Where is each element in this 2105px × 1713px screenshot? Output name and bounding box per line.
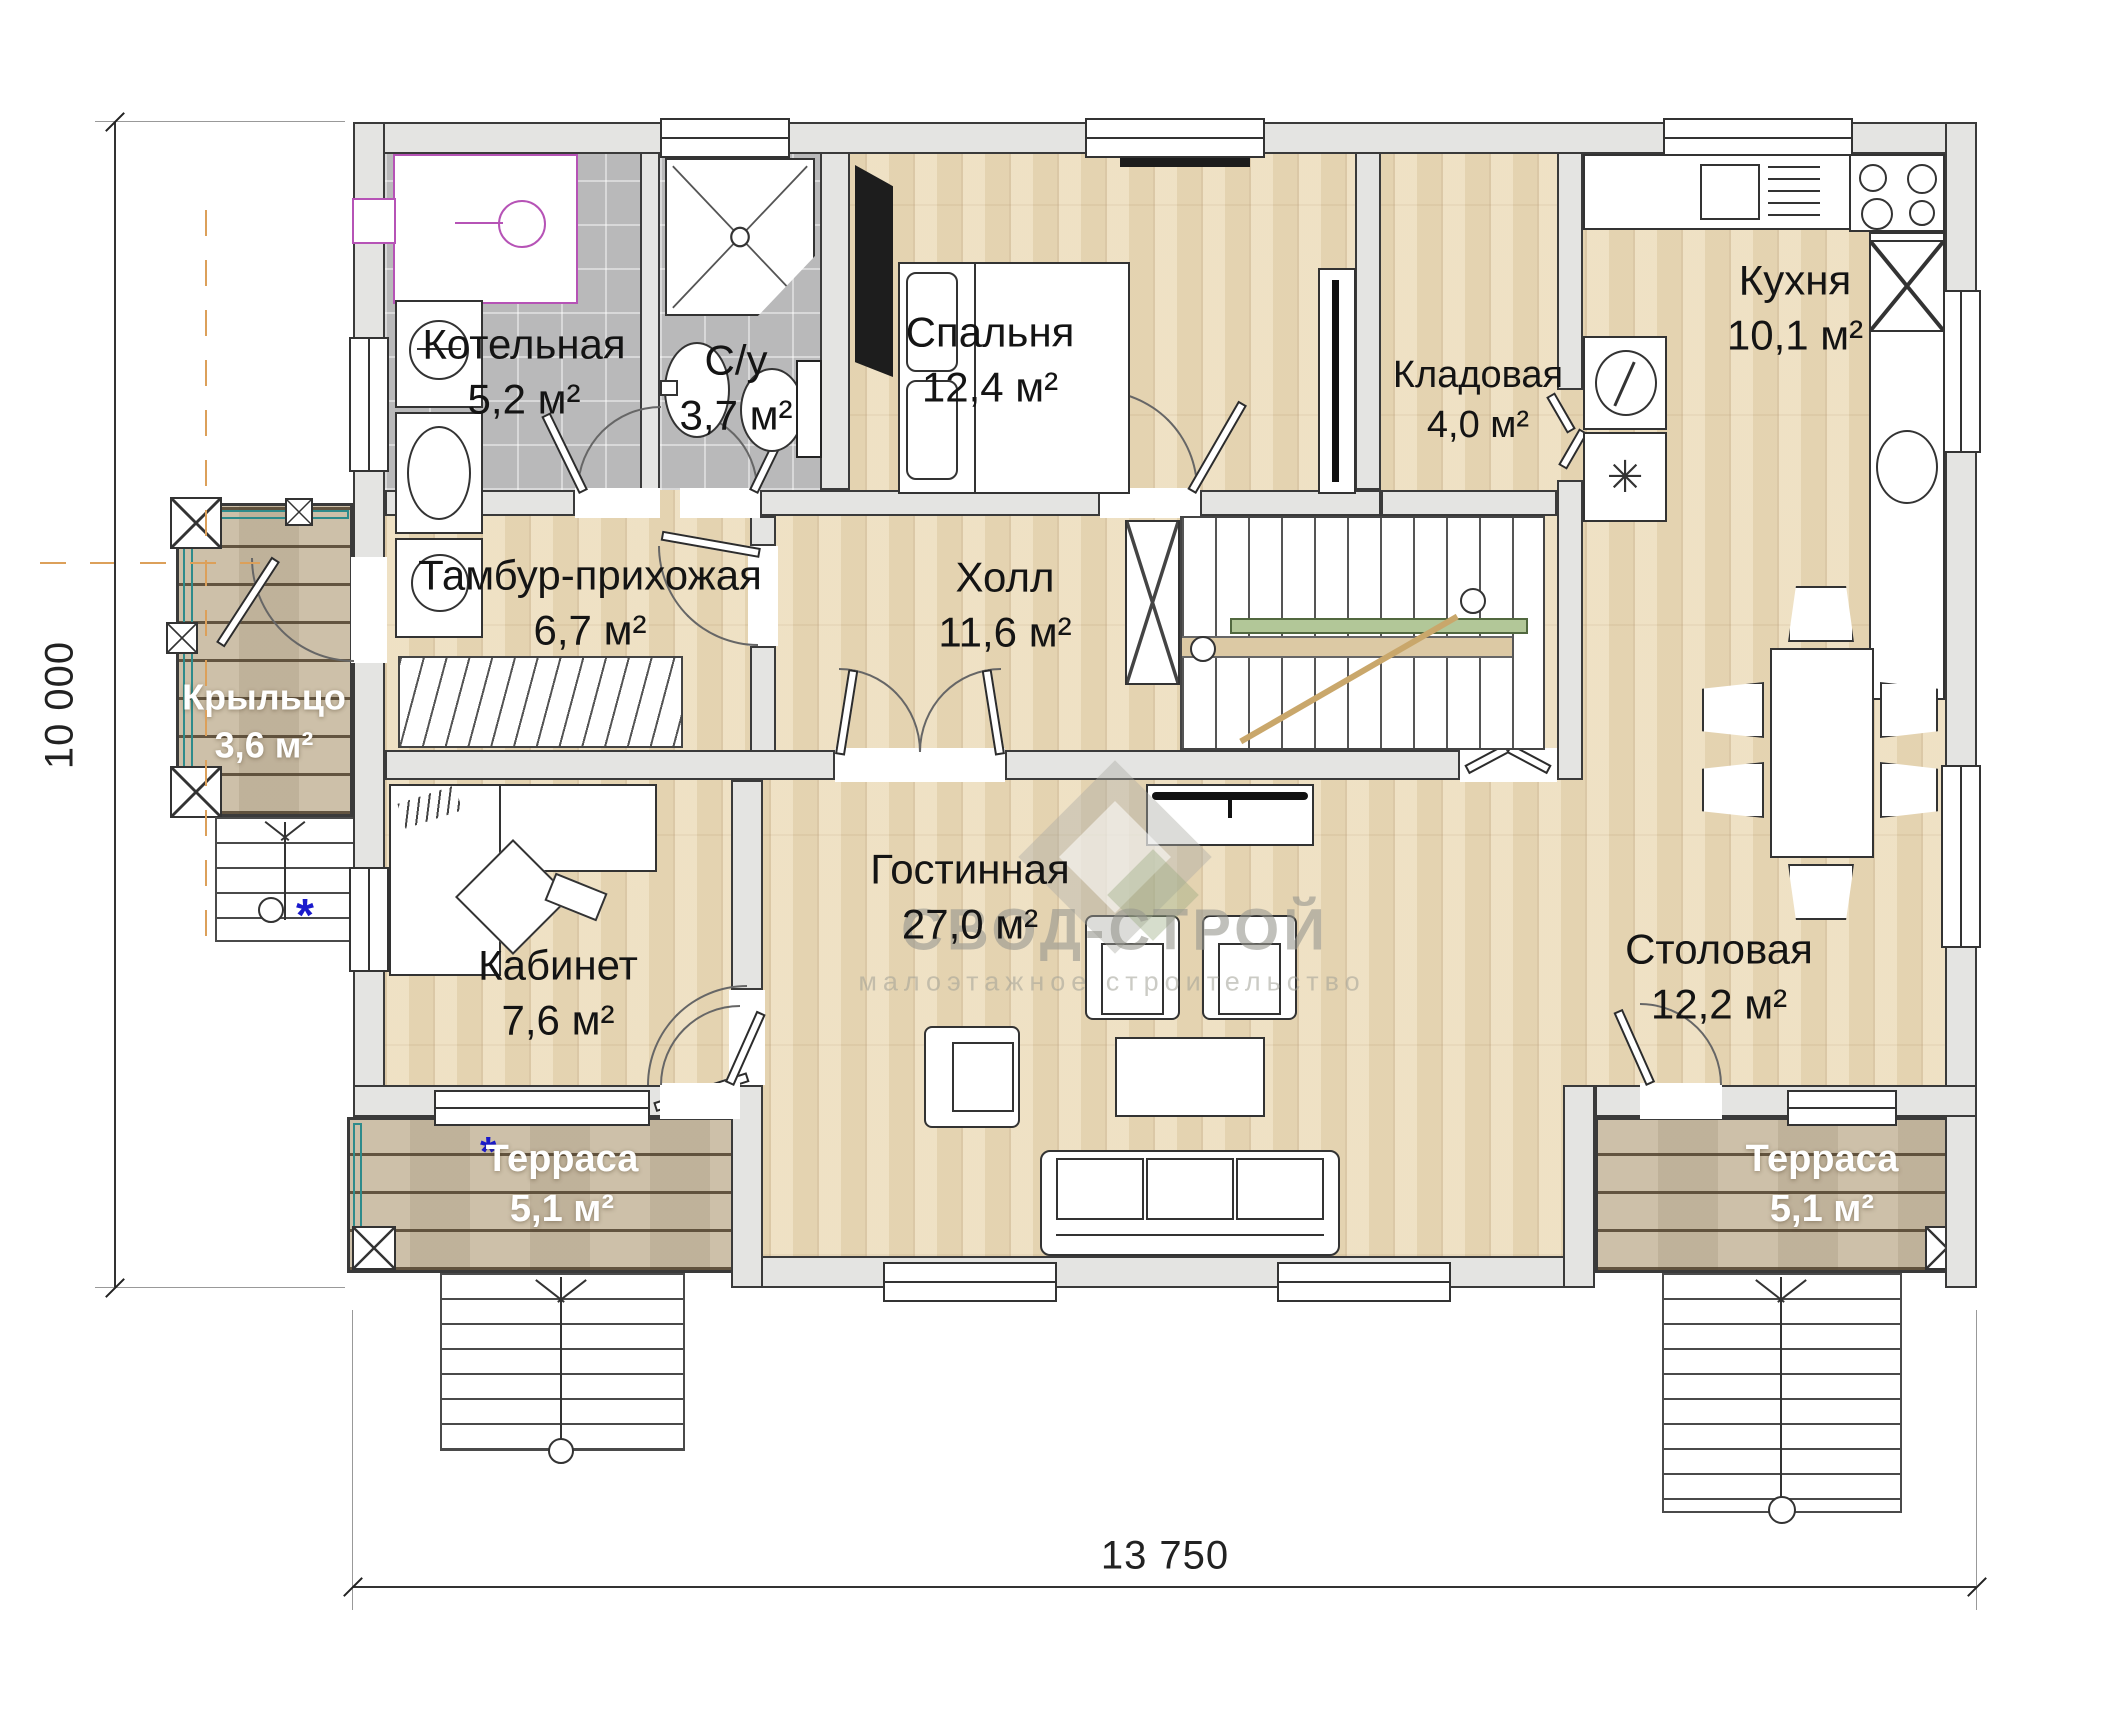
- wall-stairs-living: [1005, 750, 1460, 780]
- door-opening-entrance: [351, 557, 387, 663]
- porch-post-small: [166, 622, 198, 654]
- room-area: 7,6 м²: [478, 993, 638, 1048]
- room-name: Кухня: [1727, 253, 1863, 308]
- room-label-vestibule: Тамбур-прихожая 6,7 м²: [418, 548, 762, 659]
- dining-chair-icon: [1788, 864, 1854, 920]
- terrace-left-steps-arrow-stem: [560, 1277, 562, 1447]
- wall-bedroom-pantry: [1355, 152, 1381, 490]
- sofa-icon: [1040, 1150, 1340, 1256]
- room-label-hall: Холл 11,6 м²: [938, 550, 1071, 661]
- armchair-icon: [924, 1026, 1020, 1128]
- dining-chair-icon: [1880, 682, 1938, 738]
- window-bathroom: [660, 118, 790, 158]
- wall-hall-dining: [1557, 480, 1583, 780]
- axis-line-horizontal: [40, 562, 260, 564]
- porch-post: [170, 497, 222, 549]
- door-opening-dining-terrace: [1640, 1083, 1722, 1119]
- room-area: 4,0 м²: [1393, 400, 1563, 450]
- room-area: 11,6 м²: [938, 605, 1071, 660]
- room-name: Терраса: [486, 1134, 639, 1184]
- room-label-kitchen: Кухня 10,1 м²: [1727, 253, 1863, 364]
- toilet-tank: [796, 360, 822, 458]
- dimension-line-horizontal: [353, 1586, 1977, 1588]
- room-name: Кабинет: [478, 938, 638, 993]
- wall-interior: [1381, 490, 1557, 516]
- room-name: Тамбур-прихожая: [418, 548, 762, 603]
- dining-table-icon: [1770, 648, 1874, 858]
- wall-exterior-bottom: [731, 1256, 1595, 1288]
- room-label-office: Кабинет 7,6 м²: [478, 938, 638, 1049]
- room-label-terrace-right: Терраса 5,1 м²: [1746, 1134, 1899, 1234]
- stairs-section-mark: [1460, 588, 1486, 614]
- room-label-terrace-left: Терраса 5,1 м²: [486, 1134, 639, 1234]
- window-dining-terrace: [1787, 1090, 1897, 1126]
- window-dining-right: [1941, 765, 1981, 948]
- stove-burner: [1907, 164, 1937, 194]
- tv-screen: [1332, 280, 1339, 482]
- boiler-unit-line: [455, 222, 503, 224]
- understairs-closet: [1125, 520, 1180, 685]
- window-living-room: [1277, 1262, 1451, 1302]
- staircase: [1180, 516, 1545, 750]
- kitchen-sink-icon: [1700, 164, 1760, 220]
- armchair-seat: [952, 1042, 1014, 1112]
- wall-hall-living: [385, 750, 835, 780]
- stairs-section-mark: [1190, 636, 1216, 662]
- window-living-room: [883, 1262, 1057, 1302]
- axis-line-vertical: [205, 210, 207, 960]
- sofa-cushion: [1056, 1158, 1144, 1220]
- terrace-right-steps-mark: [1768, 1496, 1796, 1524]
- room-name: Котельная: [422, 317, 625, 372]
- extension-line: [352, 1310, 353, 1610]
- room-label-boiler-room: Котельная 5,2 м²: [422, 317, 625, 428]
- boiler-unit-icon: [393, 154, 578, 304]
- dining-chair-icon: [1702, 762, 1764, 818]
- sink-bowl: [407, 426, 471, 520]
- room-area: 5,2 м²: [422, 372, 625, 427]
- extension-line: [95, 121, 345, 122]
- room-area: 12,2 м²: [1625, 977, 1813, 1032]
- tv-living: [1152, 792, 1308, 800]
- window-bedroom: [1085, 118, 1265, 158]
- stove-burner: [1859, 164, 1887, 192]
- terrace-left-post: [352, 1226, 396, 1270]
- fridge-icon: [1869, 240, 1945, 332]
- room-name: Терраса: [1746, 1134, 1899, 1184]
- room-name: Кладовая: [1393, 350, 1563, 400]
- room-area: 5,1 м²: [1746, 1184, 1899, 1234]
- stove-burner: [1909, 200, 1935, 226]
- room-name: С/у: [680, 333, 793, 388]
- stove-burner: [1861, 198, 1893, 230]
- room-name: Спальня: [906, 305, 1075, 360]
- terrace-right-steps-arrow-stem: [1780, 1277, 1782, 1505]
- boiler-unit-pipe: [352, 198, 396, 244]
- dining-chair-icon: [1702, 682, 1764, 738]
- window-office: [349, 867, 389, 972]
- porch-post: [170, 766, 222, 818]
- coffee-table-icon: [1115, 1037, 1265, 1117]
- porch-post-small: [285, 498, 313, 526]
- watermark-subtitle: малоэтажное строительство: [858, 967, 1365, 998]
- room-name: Столовая: [1625, 922, 1813, 977]
- wall-office-living: [731, 780, 763, 990]
- room-area: 6,7 м²: [418, 603, 762, 658]
- note-asterisk: *: [296, 888, 314, 942]
- room-name: Гостинная: [870, 842, 1069, 897]
- room-label-living-room: Гостинная 27,0 м²: [870, 842, 1069, 953]
- freezer-icon: ✳: [1583, 432, 1667, 522]
- floor-plan: * *: [0, 0, 2105, 1713]
- sofa-seat-line: [1056, 1234, 1324, 1236]
- wardrobe-bedroom: [855, 165, 893, 377]
- washing-machine-kitchen: [1876, 430, 1938, 504]
- wall-stub-right: [1563, 1085, 1595, 1288]
- dining-chair-icon: [1880, 762, 1938, 818]
- door-opening-living-double: [835, 748, 1005, 782]
- window-kitchen-top: [1663, 118, 1853, 158]
- boiler-kitchen-icon: [1583, 336, 1667, 430]
- wall-vestibule-hall: [750, 646, 776, 756]
- stairs-landing: [1182, 636, 1512, 658]
- room-area: 3,7 м²: [680, 388, 793, 443]
- snowflake-icon: ✳: [1607, 453, 1644, 502]
- hallway-closet: [398, 656, 683, 748]
- room-name: Холл: [938, 550, 1071, 605]
- sink-tap: [660, 380, 678, 396]
- window-kitchen-right: [1941, 290, 1981, 453]
- room-area: 5,1 м²: [486, 1184, 639, 1234]
- wall-vestibule-hall: [750, 516, 776, 546]
- boiler-unit-dial: [498, 200, 546, 248]
- dimension-width-label: 13 750: [1101, 1534, 1229, 1579]
- door-opening-bathroom: [680, 488, 760, 518]
- room-area: 12,4 м²: [906, 360, 1075, 415]
- terrace-right-steps: [1662, 1273, 1902, 1513]
- sofa-cushion: [1236, 1158, 1324, 1220]
- extension-line: [95, 1287, 345, 1288]
- dimension-line-vertical: [114, 122, 116, 1288]
- window-boiler-room: [349, 337, 389, 472]
- wall-bedroom-left: [820, 152, 850, 490]
- stove-icon: [1849, 154, 1945, 232]
- door-opening-boiler: [575, 488, 660, 518]
- curtain-bar-bedroom: [1120, 158, 1250, 167]
- dimension-height-label: 10 000: [38, 641, 83, 769]
- tv-stand: [1228, 800, 1232, 818]
- door-opening-office-terrace: [660, 1083, 740, 1119]
- porch-steps-mark: [258, 897, 284, 923]
- room-label-pantry: Кладовая 4,0 м²: [1393, 350, 1563, 450]
- dining-chair-icon: [1788, 586, 1854, 642]
- stairs-rail: [1230, 618, 1528, 634]
- sofa-cushion: [1146, 1158, 1234, 1220]
- tv-bedroom: [1318, 268, 1356, 494]
- extension-line: [1976, 1310, 1977, 1610]
- terrace-left-steps-mark: [548, 1438, 574, 1464]
- sink-boiler-icon: [395, 412, 483, 534]
- room-area: 10,1 м²: [1727, 308, 1863, 363]
- window-office-terrace: [434, 1090, 650, 1126]
- room-area: 27,0 м²: [870, 897, 1069, 952]
- room-label-dining-room: Столовая 12,2 м²: [1625, 922, 1813, 1033]
- room-label-bedroom: Спальня 12,4 м²: [906, 305, 1075, 416]
- room-label-bathroom: С/у 3,7 м²: [680, 333, 793, 444]
- kitchen-sink-drainer: [1768, 166, 1820, 218]
